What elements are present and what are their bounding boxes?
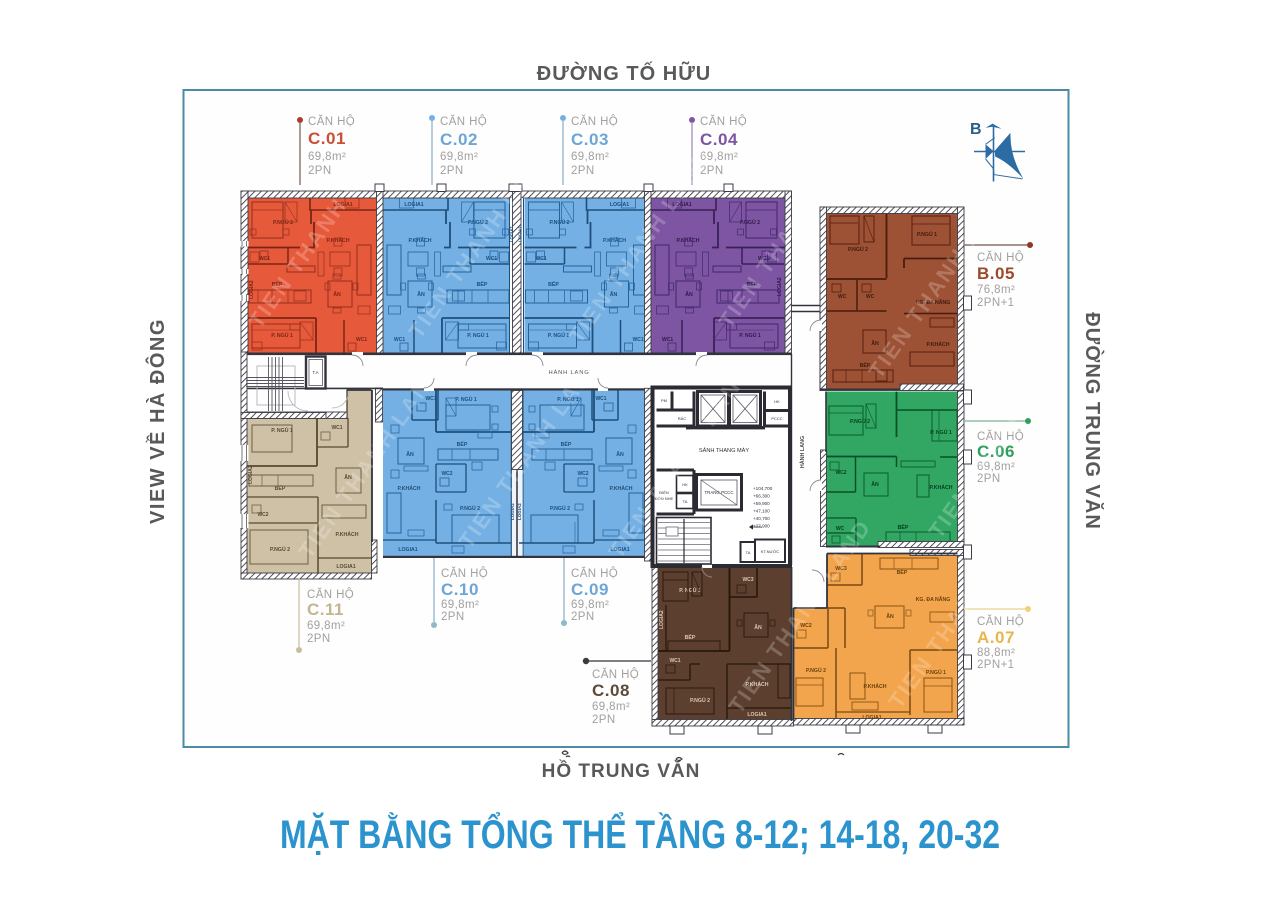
svg-text:ĐƯỜNG TRUNG VĂN: ĐƯỜNG TRUNG VĂN: [1081, 312, 1105, 530]
svg-text:ĂN: ĂN: [406, 451, 414, 458]
svg-text:C.01: C.01: [308, 129, 346, 148]
svg-text:2PN: 2PN: [440, 165, 464, 177]
svg-text:WC1: WC1: [669, 658, 680, 664]
svg-text:WC2: WC2: [835, 470, 846, 476]
svg-text:P.NGỦ 2: P.NGỦ 2: [850, 418, 870, 425]
svg-text:WC: WC: [838, 294, 847, 300]
svg-text:2PN: 2PN: [571, 165, 595, 177]
svg-text:BẾP: BẾP: [685, 634, 696, 641]
svg-text:+59,900: +59,900: [753, 501, 770, 506]
svg-text:WC2: WC2: [441, 471, 452, 477]
svg-text:P.NGỦ 2: P.NGỦ 2: [270, 546, 290, 553]
svg-text:P. NGỦ 1: P. NGỦ 1: [467, 332, 489, 339]
svg-text:WC1: WC1: [662, 337, 673, 343]
svg-text:2PN+1: 2PN+1: [977, 659, 1014, 671]
svg-text:TA: TA: [683, 499, 688, 504]
svg-text:WC1: WC1: [394, 337, 405, 343]
svg-text:ĂN: ĂN: [754, 624, 762, 631]
svg-text:C.09: C.09: [571, 580, 609, 599]
svg-text:2PN+1: 2PN+1: [977, 297, 1014, 309]
svg-text:CĂN HỘ: CĂN HỘ: [571, 567, 618, 580]
svg-text:P.NGỦ 2: P.NGỦ 2: [848, 246, 868, 253]
svg-text:BẾP: BẾP: [477, 281, 488, 288]
svg-text:69,8m²: 69,8m²: [441, 599, 479, 611]
svg-text:LOGIA2: LOGIA2: [509, 226, 514, 242]
svg-text:69,8m²: 69,8m²: [571, 599, 609, 611]
svg-text:C.02: C.02: [440, 130, 478, 149]
svg-text:P.KHÁCH: P.KHÁCH: [336, 531, 359, 538]
svg-text:88,8m²: 88,8m²: [977, 647, 1015, 659]
svg-text:LOGIA2: LOGIA2: [248, 465, 254, 484]
svg-text:VIEW VỀ HÀ ĐÔNG: VIEW VỀ HÀ ĐÔNG: [145, 318, 169, 524]
svg-text:+47,100: +47,100: [753, 509, 770, 514]
svg-text:69,8m²: 69,8m²: [592, 701, 630, 713]
svg-text:WC1: WC1: [633, 337, 644, 343]
svg-text:ĐƯỜNG TỐ HỮU: ĐƯỜNG TỐ HỮU: [537, 61, 711, 85]
svg-text:2PN: 2PN: [307, 633, 331, 645]
svg-text:A.07: A.07: [977, 628, 1015, 647]
svg-text:C.08: C.08: [592, 681, 630, 700]
svg-text:BẾP: BẾP: [897, 569, 908, 576]
svg-text:LOGIA2: LOGIA2: [510, 503, 515, 520]
svg-text:CĂN HỘ: CĂN HỘ: [308, 115, 355, 128]
svg-text:WC3: WC3: [742, 577, 753, 583]
svg-text:MẶT BẰNG TỔNG THỂ TẦNG 8-12; 1: MẶT BẰNG TỔNG THỂ TẦNG 8-12; 14-18, 20-3…: [280, 809, 1000, 856]
svg-text:ĂN: ĂN: [886, 613, 894, 620]
svg-text:CĂN HỘ: CĂN HỘ: [977, 251, 1024, 264]
svg-text:CĂN HỘ: CĂN HỘ: [592, 668, 639, 681]
svg-text:P.KHÁCH: P.KHÁCH: [398, 485, 421, 492]
svg-text:76,8m²: 76,8m²: [977, 284, 1015, 296]
svg-text:TA: TA: [746, 550, 751, 555]
svg-text:LOGIA1: LOGIA1: [747, 712, 766, 718]
svg-text:BẾP: BẾP: [561, 441, 572, 448]
svg-text:P.NGỦ 2: P.NGỦ 2: [550, 505, 570, 512]
svg-text:+66,300: +66,300: [753, 494, 770, 499]
svg-text:C.04: C.04: [700, 130, 738, 149]
svg-text:P. NGỦ 1: P. NGỦ 1: [930, 429, 952, 436]
svg-text:WC1: WC1: [331, 425, 342, 431]
svg-text:ĂN: ĂN: [417, 291, 425, 298]
svg-text:ĂN: ĂN: [616, 451, 624, 458]
svg-text:+27,900: +27,900: [753, 524, 770, 529]
svg-text:BẾP: BẾP: [898, 524, 909, 531]
svg-text:C.10: C.10: [441, 580, 479, 599]
svg-text:KT.NƯỚC: KT.NƯỚC: [761, 549, 780, 554]
svg-text:CĂN HỘ: CĂN HỘ: [571, 115, 618, 128]
svg-text:LOGIA1: LOGIA1: [398, 547, 417, 553]
svg-text:P. NGỦ 1: P. NGỦ 1: [455, 396, 477, 403]
svg-text:B.05: B.05: [977, 264, 1015, 283]
svg-text:ĂN: ĂN: [685, 291, 693, 298]
svg-text:69,8m²: 69,8m²: [571, 151, 609, 163]
svg-text:C.03: C.03: [571, 130, 609, 149]
svg-text:CĂN HỘ: CĂN HỘ: [440, 115, 487, 128]
svg-text:CĂN HỘ: CĂN HỘ: [977, 615, 1024, 628]
svg-text:2PN: 2PN: [441, 611, 465, 623]
svg-text:P. NGỦ 1: P. NGỦ 1: [739, 332, 761, 339]
svg-text:WC: WC: [866, 294, 875, 300]
svg-text:69,8m²: 69,8m²: [308, 151, 346, 163]
svg-text:ĂN: ĂN: [871, 481, 879, 488]
svg-text:LOGIA2: LOGIA2: [517, 503, 522, 520]
svg-text:2PN: 2PN: [308, 165, 332, 177]
svg-text:HÀNH LANG: HÀNH LANG: [799, 436, 806, 468]
svg-text:P.KHÁCH: P.KHÁCH: [864, 683, 887, 690]
svg-text:P.NGỦ 1: P.NGỦ 1: [917, 231, 937, 238]
svg-text:+104,700: +104,700: [753, 486, 773, 491]
svg-text:RÁC: RÁC: [678, 416, 687, 421]
svg-text:WC2: WC2: [577, 471, 588, 477]
svg-text:P. NGỦ 1: P. NGỦ 1: [271, 332, 293, 339]
svg-text:C.11: C.11: [307, 600, 344, 619]
svg-text:HK: HK: [682, 482, 688, 487]
svg-text:P. NGỦ 1: P. NGỦ 1: [271, 427, 293, 434]
svg-text:BẾP: BẾP: [457, 441, 468, 448]
svg-text:+40,700: +40,700: [753, 516, 770, 521]
svg-text:LOGIA1: LOGIA1: [336, 564, 355, 570]
svg-text:T.A: T.A: [312, 370, 318, 375]
svg-text:WC1: WC1: [356, 337, 367, 343]
svg-text:BẾP: BẾP: [548, 281, 559, 288]
svg-text:LOGIA2: LOGIA2: [518, 226, 523, 242]
svg-text:KG. ĐA NĂNG: KG. ĐA NĂNG: [916, 596, 951, 603]
svg-text:69,8m²: 69,8m²: [307, 620, 345, 632]
svg-text:P.KHÁCH: P.KHÁCH: [930, 484, 953, 491]
svg-text:CĂN HỘ: CĂN HỘ: [441, 567, 488, 580]
svg-text:LOGIA2: LOGIA2: [659, 610, 665, 629]
svg-text:WC1: WC1: [595, 396, 606, 402]
svg-text:PCCC: PCCC: [771, 416, 782, 421]
svg-text:SẢNH THANG MÁY: SẢNH THANG MÁY: [699, 447, 750, 454]
svg-text:LOGIA2: LOGIA2: [777, 277, 783, 296]
svg-text:HỒ TRUNG VĂN: HỒ TRUNG VĂN: [542, 760, 701, 782]
svg-text:ĂN: ĂN: [871, 340, 879, 347]
svg-text:P.KHÁCH: P.KHÁCH: [927, 341, 950, 348]
svg-text:ĂN: ĂN: [333, 291, 341, 298]
svg-text:P.KHÁCH: P.KHÁCH: [610, 485, 633, 492]
svg-text:P. NGỦ 1: P. NGỦ 1: [679, 587, 701, 594]
svg-text:PM: PM: [661, 398, 667, 403]
svg-text:P.NGỦ 2: P.NGỦ 2: [690, 697, 710, 704]
svg-text:LOGIA1: LOGIA1: [610, 202, 629, 208]
svg-text:CĂN HỘ: CĂN HỘ: [700, 115, 747, 128]
svg-text:LOGIA1: LOGIA1: [404, 202, 423, 208]
svg-text:LOGIA2: LOGIA2: [249, 280, 255, 299]
svg-text:HK: HK: [774, 399, 780, 404]
svg-text:69,8m²: 69,8m²: [440, 151, 478, 163]
svg-text:2PN: 2PN: [592, 714, 616, 726]
svg-text:B: B: [970, 121, 982, 138]
svg-text:2PN: 2PN: [571, 611, 595, 623]
svg-text:P.NGỦ 2: P.NGỦ 2: [740, 219, 760, 226]
svg-text:P.NGỦ 2: P.NGỦ 2: [806, 667, 826, 674]
